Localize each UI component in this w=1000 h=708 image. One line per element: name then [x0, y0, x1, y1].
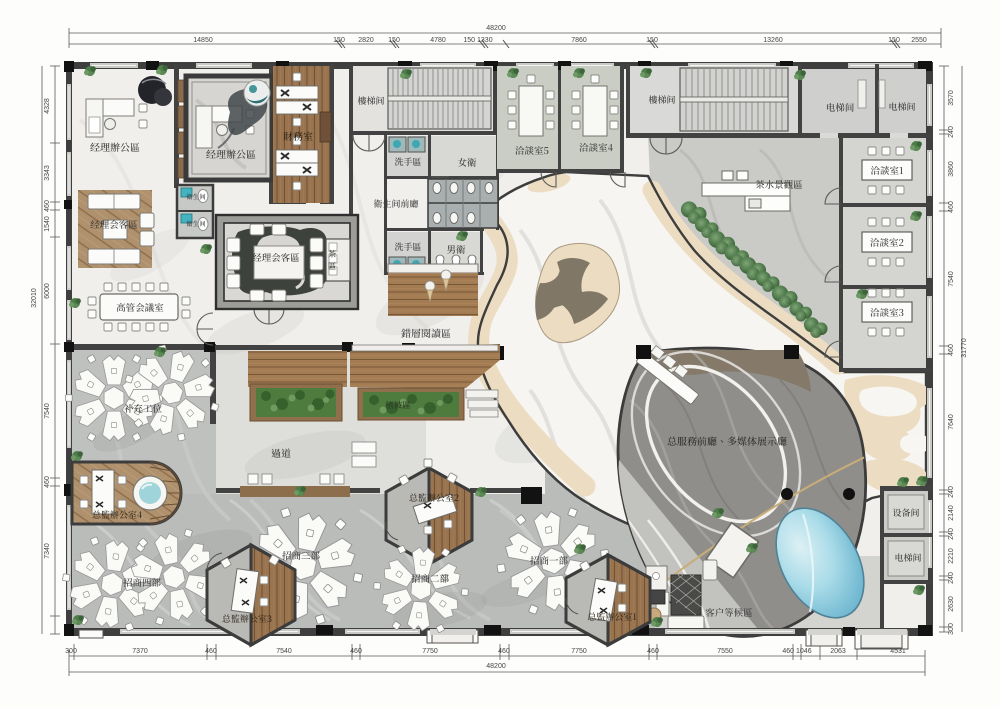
svg-text:240: 240 [948, 126, 955, 138]
svg-text:7540: 7540 [276, 648, 292, 655]
svg-text:150: 150 [646, 37, 658, 44]
svg-text:2550: 2550 [911, 37, 927, 44]
svg-text:460: 460 [44, 200, 51, 212]
svg-text:7340: 7340 [44, 543, 51, 559]
svg-text:460: 460 [44, 476, 51, 488]
svg-text:31770: 31770 [961, 338, 968, 358]
svg-text:6000: 6000 [44, 283, 51, 299]
svg-text:4328: 4328 [44, 98, 51, 114]
svg-text:2820: 2820 [358, 37, 374, 44]
svg-text:2063: 2063 [830, 648, 846, 655]
svg-text:7540: 7540 [44, 403, 51, 419]
svg-text:460: 460 [948, 344, 955, 356]
svg-text:7540: 7540 [948, 271, 955, 287]
svg-text:7370: 7370 [132, 648, 148, 655]
svg-text:4780: 4780 [430, 37, 446, 44]
svg-text:460: 460 [498, 648, 510, 655]
svg-text:3570: 3570 [948, 90, 955, 106]
svg-text:2210: 2210 [948, 548, 955, 564]
svg-text:32010: 32010 [31, 288, 38, 308]
svg-text:460: 460 [205, 648, 217, 655]
svg-text:460 1046: 460 1046 [782, 648, 811, 655]
svg-text:2140: 2140 [948, 505, 955, 521]
svg-text:150: 150 [388, 37, 400, 44]
svg-text:300: 300 [948, 623, 955, 635]
svg-text:460: 460 [647, 648, 659, 655]
svg-text:7750: 7750 [571, 648, 587, 655]
svg-text:240: 240 [948, 486, 955, 498]
svg-text:7550: 7550 [717, 648, 733, 655]
svg-text:48200: 48200 [486, 663, 506, 670]
svg-text:7750: 7750 [422, 648, 438, 655]
svg-text:13260: 13260 [763, 37, 783, 44]
svg-text:460: 460 [948, 201, 955, 213]
svg-text:48200: 48200 [486, 25, 506, 32]
svg-text:240: 240 [948, 572, 955, 584]
svg-text:3343: 3343 [44, 165, 51, 181]
svg-text:3860: 3860 [948, 161, 955, 177]
svg-text:300: 300 [65, 648, 77, 655]
svg-text:460: 460 [350, 648, 362, 655]
svg-text:150: 150 [333, 37, 345, 44]
svg-text:150: 150 [888, 37, 900, 44]
svg-text:7860: 7860 [571, 37, 587, 44]
svg-text:1540: 1540 [44, 216, 51, 232]
svg-text:14850: 14850 [193, 37, 213, 44]
svg-text:240: 240 [948, 528, 955, 540]
svg-text:150 1330: 150 1330 [463, 37, 492, 44]
svg-text:7640: 7640 [948, 414, 955, 430]
svg-text:2630: 2630 [948, 596, 955, 612]
